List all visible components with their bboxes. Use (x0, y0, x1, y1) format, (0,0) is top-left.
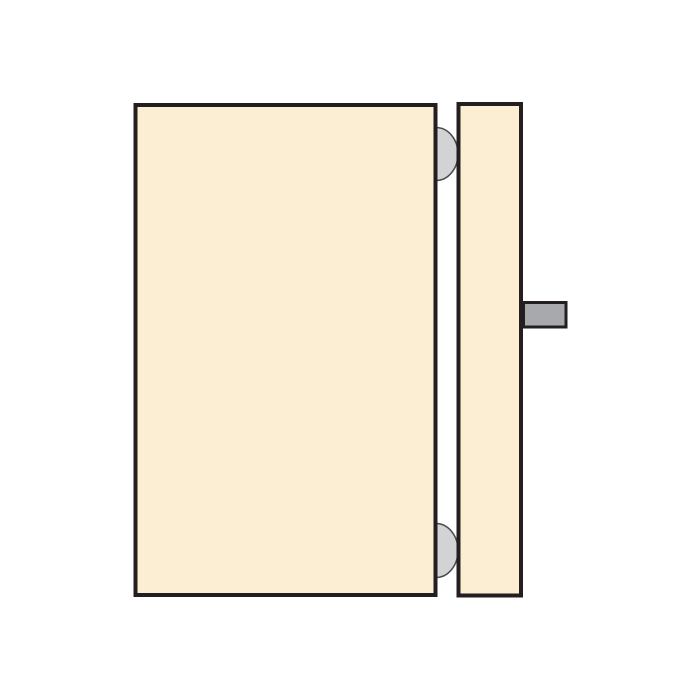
door-hinge-diagram (0, 0, 700, 700)
door-jamb (459, 104, 522, 596)
door-panel (136, 105, 436, 595)
latch-handle (524, 303, 567, 328)
diagram-canvas (0, 0, 700, 700)
